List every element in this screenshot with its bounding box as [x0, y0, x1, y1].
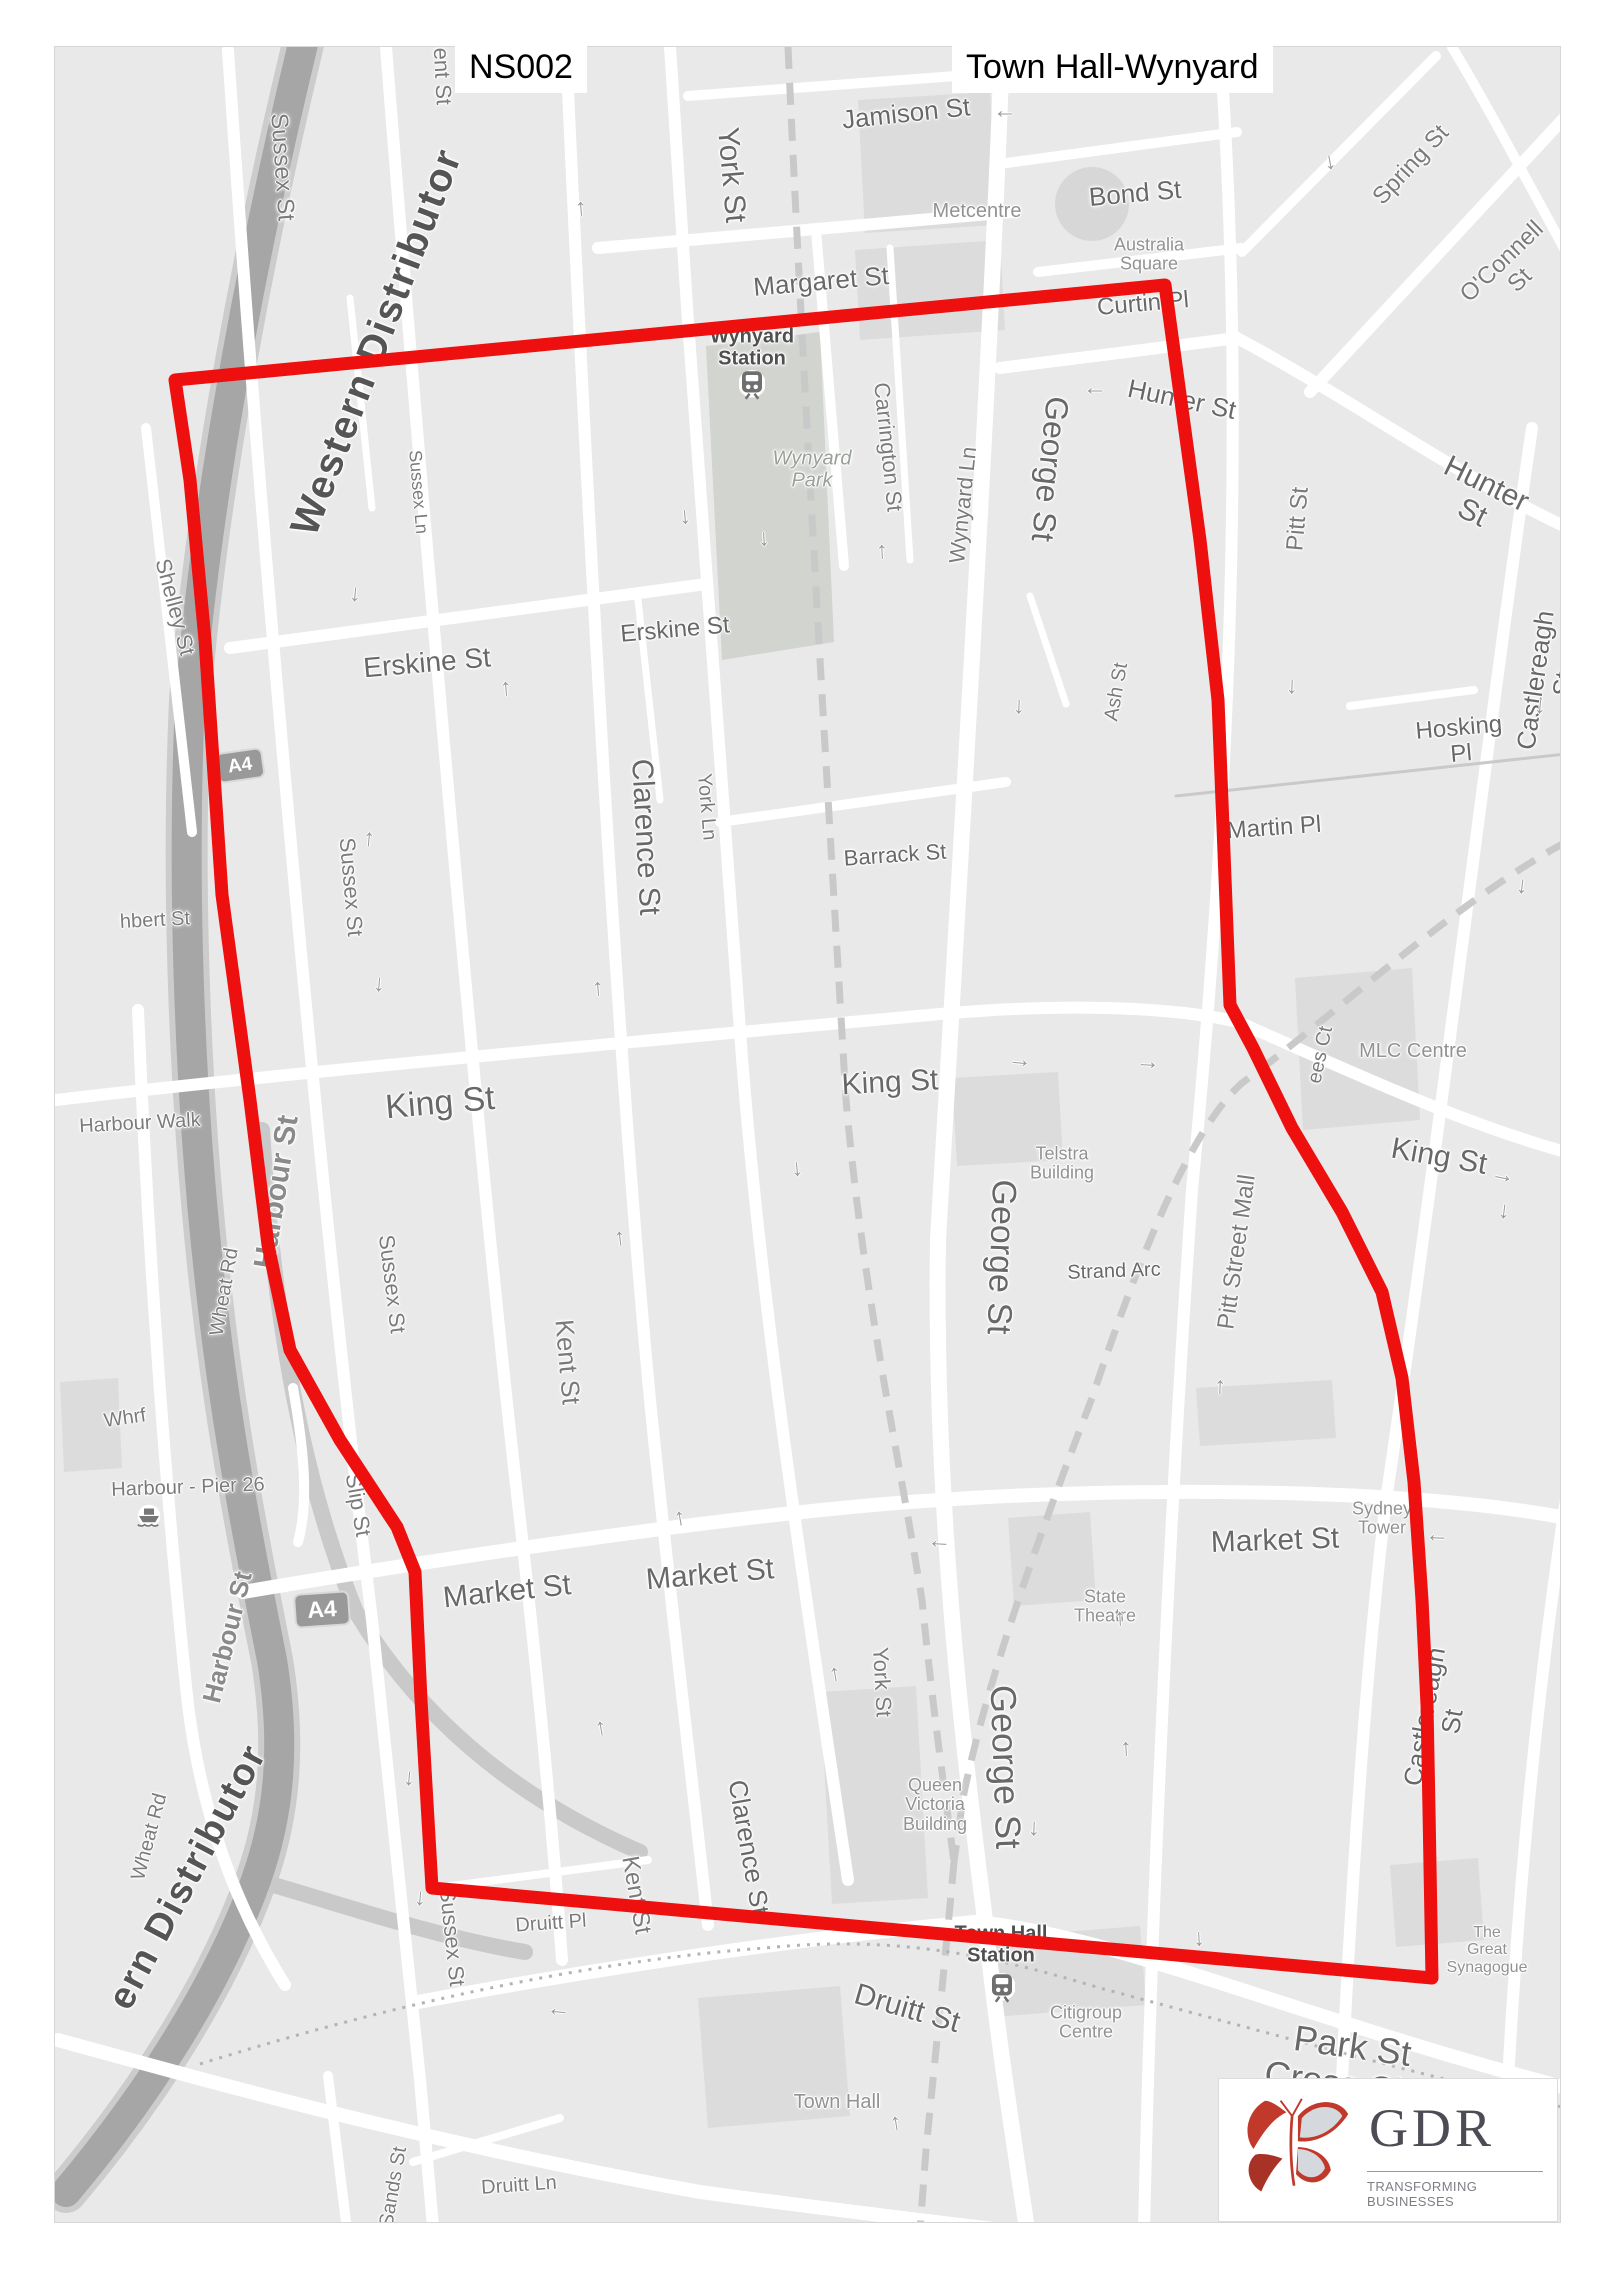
gdr-wordmark: GDR — [1369, 2097, 1495, 2159]
map-overlay-layer — [55, 47, 1560, 2222]
route-boundary-overlay — [175, 285, 1432, 1978]
route-code-title: NS002 — [455, 42, 587, 93]
gdr-tagline: TRANSFORMING BUSINESSES — [1367, 2179, 1557, 2209]
gdr-logo: GDR TRANSFORMING BUSINESSES — [1218, 2078, 1558, 2222]
page: Sussex StKent StYork StJamison StBond St… — [0, 0, 1614, 2283]
route-name-title: Town Hall-Wynyard — [952, 42, 1273, 93]
butterfly-icon — [1237, 2093, 1355, 2205]
map-canvas[interactable]: Sussex StKent StYork StJamison StBond St… — [55, 47, 1560, 2222]
gdr-divider — [1367, 2171, 1543, 2172]
